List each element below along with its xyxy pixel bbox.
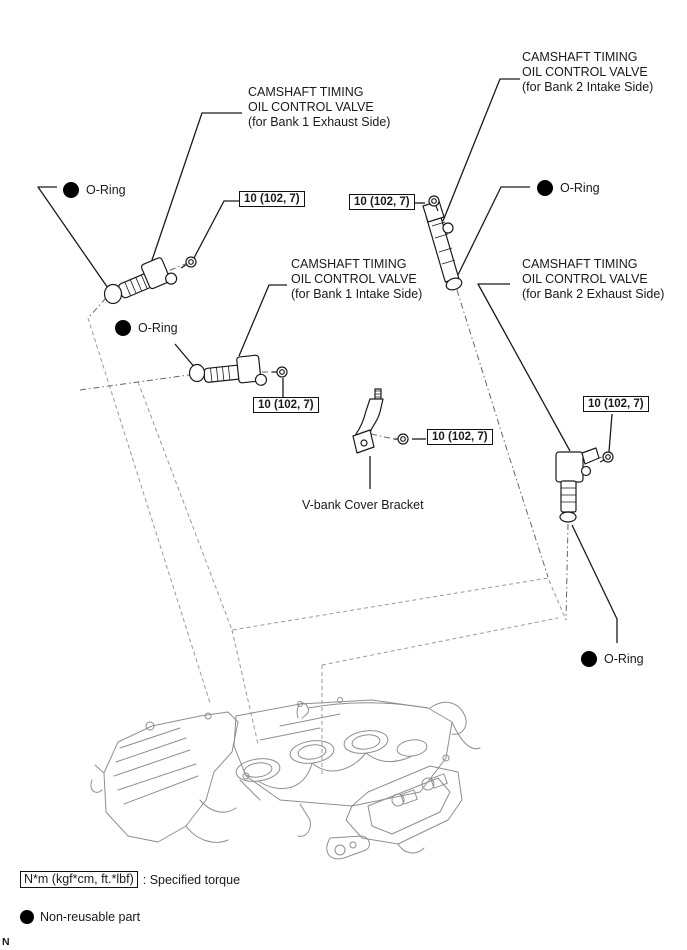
torque-spec-box-2: 10 (102, 7) [349,194,415,210]
oring-callout-bottom-right: O-Ring [581,651,644,667]
callout-line: (for Bank 2 Exhaust Side) [522,287,664,302]
legend-non-reusable: Non-reusable part [20,910,140,924]
torque-spec-box-3: 10 (102, 7) [253,397,319,413]
bolt-bank2-exhaust [600,452,613,462]
callout-line: (for Bank 1 Intake Side) [291,287,422,302]
oring-part-bank1-exhaust [105,285,122,304]
engine-illustration [91,698,480,859]
v-bank-cover-bracket-label: V-bank Cover Bracket [302,498,424,512]
oring-label: O-Ring [138,321,178,335]
torque-spec-box-4: 10 (102, 7) [427,429,493,445]
oring-label: O-Ring [560,181,600,195]
leader-lines [38,79,617,643]
oring-label: O-Ring [86,183,126,197]
legend-specified-torque: N*m (kgf*cm, ft.*lbf) : Specified torque [20,871,240,888]
callout-line: CAMSHAFT TIMING [522,50,653,65]
valve-bank1-exhaust [114,254,178,304]
oring-callout-top-left: O-Ring [63,182,126,198]
diagram-linework [0,0,687,950]
oring-part-bank1-intake [190,365,205,382]
valve-bank2-exhaust [556,448,599,512]
bolt-bracket [394,434,408,444]
non-reusable-dot-icon [537,180,553,196]
non-reusable-dot-icon [581,651,597,667]
oring-callout-top-right: O-Ring [537,180,600,196]
non-reusable-dot-icon [20,910,34,924]
oring-label: O-Ring [604,652,644,666]
oring-callout-mid-left: O-Ring [115,320,178,336]
callout-line: CAMSHAFT TIMING [248,85,390,100]
callout-bank1-exhaust: CAMSHAFT TIMING OIL CONTROL VALVE (for B… [248,85,390,130]
bolt-bank1-intake [272,367,287,377]
exploded-parts-diagram: CAMSHAFT TIMING OIL CONTROL VALVE (for B… [0,0,687,950]
bolt-bank1-exhaust [181,257,196,268]
callout-line: CAMSHAFT TIMING [291,257,422,272]
non-reusable-label: Non-reusable part [40,910,140,924]
valve-bank1-intake [203,354,267,391]
callout-line: (for Bank 1 Exhaust Side) [248,115,390,130]
callout-line: OIL CONTROL VALVE [291,272,422,287]
torque-caption: : Specified torque [143,873,240,887]
callout-line: OIL CONTROL VALVE [522,272,664,287]
torque-spec-box-1: 10 (102, 7) [239,191,305,207]
v-bank-cover-bracket-part [353,389,383,453]
torque-unit-box: N*m (kgf*cm, ft.*lbf) [20,871,138,888]
callout-bank2-exhaust: CAMSHAFT TIMING OIL CONTROL VALVE (for B… [522,257,664,302]
callout-bank2-intake: CAMSHAFT TIMING OIL CONTROL VALVE (for B… [522,50,653,95]
callout-line: OIL CONTROL VALVE [522,65,653,80]
torque-spec-box-5: 10 (102, 7) [583,396,649,412]
non-reusable-dot-icon [63,182,79,198]
non-reusable-dot-icon [115,320,131,336]
callout-line: CAMSHAFT TIMING [522,257,664,272]
valve-bank2-intake [423,201,459,282]
callout-line: OIL CONTROL VALVE [248,100,390,115]
oring-part-bank2-exhaust [560,512,576,522]
callout-bank1-intake: CAMSHAFT TIMING OIL CONTROL VALVE (for B… [291,257,422,302]
oil-control-valve-parts [105,196,614,522]
page-marker: N [2,936,10,948]
callout-line: (for Bank 2 Intake Side) [522,80,653,95]
dashed-plane-lines [88,318,566,776]
